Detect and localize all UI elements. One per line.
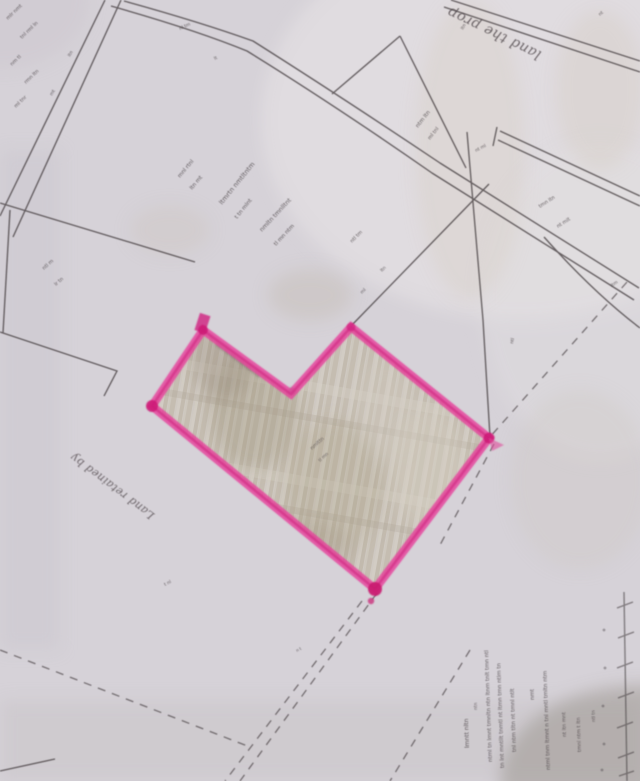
highlighter-corner-dab <box>347 323 356 332</box>
survey-plat-photo: nmlttn tl mn mlr nmt tnl rml ln nm tl rm… <box>0 0 640 781</box>
title-column-marks: nmt <box>530 688 536 700</box>
plat-canvas: nmlttn tl mn mlr nmt tnl rml ln nm tl rm… <box>0 0 640 781</box>
title-column-marks: nt ltn mnt <box>561 712 568 737</box>
highlighter-corner-dab <box>368 598 374 604</box>
map-label-marks: ntl <box>509 338 516 345</box>
highlighter-corner-dab <box>146 400 158 412</box>
title-subheading-marks: ntn <box>473 702 479 710</box>
title-column-marks: tmnl ntm t ltn <box>576 717 583 752</box>
title-heading-marks: lmntt nltn <box>463 718 471 748</box>
title-column-marks: ntl tn <box>591 710 597 722</box>
highlighter-corner-dab <box>198 325 208 335</box>
highlighter-corner-dab <box>368 582 382 596</box>
